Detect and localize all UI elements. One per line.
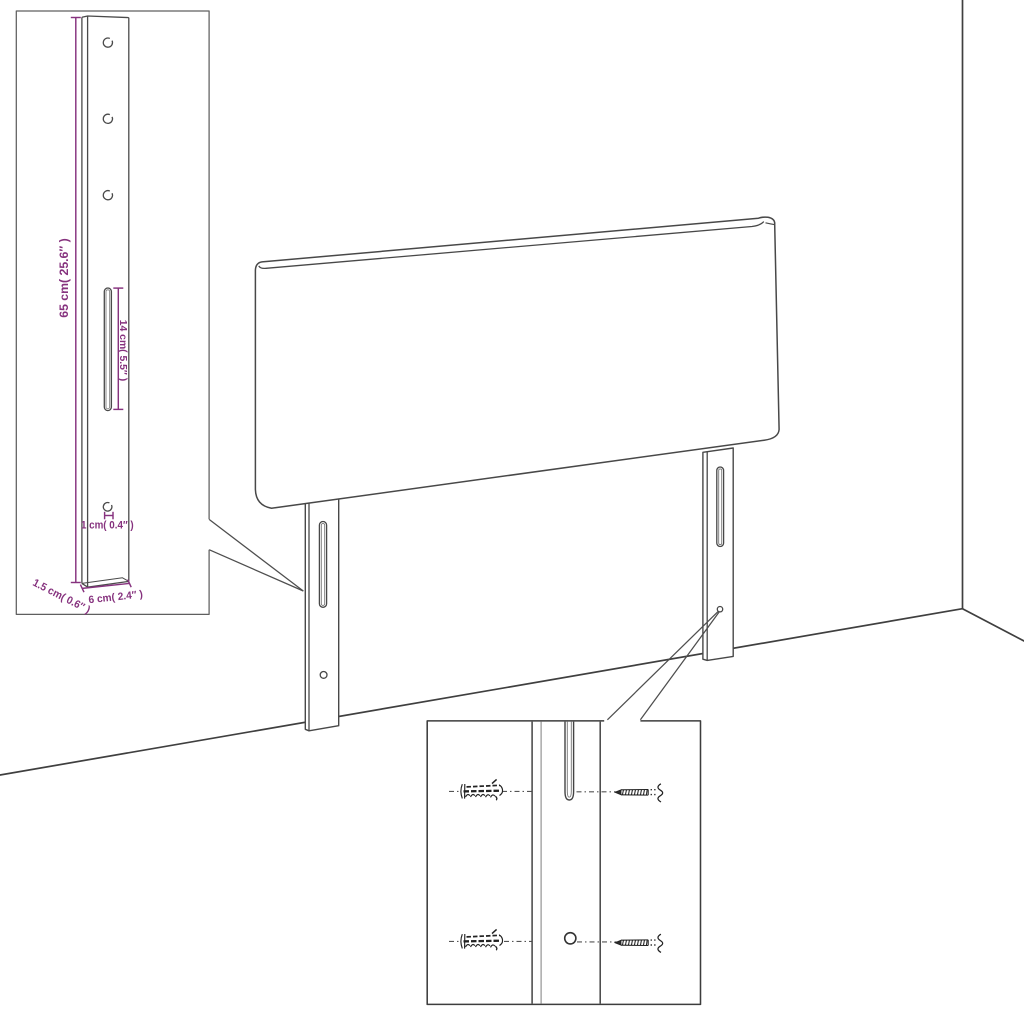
svg-text:1 cm( 0.4″ ): 1 cm( 0.4″ ) [81,520,134,532]
svg-text:65 cm( 25.6″ ): 65 cm( 25.6″ ) [57,238,71,318]
svg-text:14 cm( 5.5″ ): 14 cm( 5.5″ ) [117,320,129,382]
